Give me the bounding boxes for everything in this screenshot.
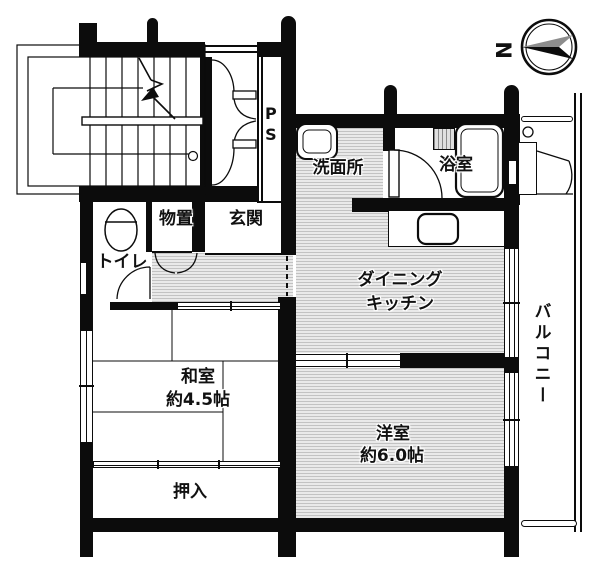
- stair-top-wall: [79, 42, 205, 57]
- entrance-label: 玄関: [218, 210, 274, 230]
- western-balcony-window: [504, 372, 519, 467]
- stub-wash-bath: [384, 85, 397, 114]
- japanese-room-label: 和室: [168, 368, 228, 388]
- compass-icon: [522, 20, 576, 74]
- bathroom-window: [508, 160, 517, 185]
- toilet-icon: [105, 209, 137, 251]
- balcony-label: バルコニー: [530, 286, 550, 422]
- ps-line-left: [257, 53, 259, 202]
- dk-balcony-window: [504, 248, 519, 358]
- water-heater-unit: [518, 142, 537, 195]
- bathroom-pan: [433, 128, 455, 150]
- bathroom-label: 浴室: [431, 156, 481, 176]
- right-wall-upper: [504, 205, 519, 248]
- pipe-space-label: PS: [261, 98, 279, 152]
- stub-bath-right: [504, 85, 519, 114]
- entrance-step-line: [205, 253, 293, 255]
- western-room-label: 洋室: [363, 425, 423, 445]
- staircase: [17, 45, 205, 194]
- entrance-dk-boundary: [286, 256, 288, 296]
- balcony-rail-line1: [574, 93, 576, 532]
- dk-western-sliding-door: [295, 354, 401, 367]
- toilet-window: [80, 262, 87, 295]
- ps-bottom-line: [257, 201, 281, 203]
- wash-bath-divider: [383, 128, 395, 151]
- closet-fusuma: [93, 461, 281, 468]
- stair-landing-wall: [200, 57, 212, 188]
- storage-label: 物置: [150, 210, 202, 230]
- balcony-rail-line2: [580, 93, 582, 532]
- japanese-room-top-wall: [110, 302, 177, 310]
- balcony-divider-top: [521, 116, 573, 122]
- landing-top-line2: [205, 51, 257, 53]
- washroom-label: 洗面所: [306, 159, 370, 179]
- ps-right-wall: [281, 42, 296, 255]
- dining-kitchen-label-line2: キッチン: [348, 295, 452, 315]
- corridor-floor: [152, 253, 293, 303]
- japanese-room-window: [80, 330, 93, 443]
- stairs-up-arrow: [139, 58, 175, 119]
- washroom-top-wall: [296, 114, 518, 128]
- stair-bottom-wall: [79, 186, 257, 202]
- storage-bottom-line: [152, 251, 192, 253]
- right-wall-mid: [504, 358, 519, 372]
- entrance-door-arcs: [212, 60, 256, 185]
- bottom-wall: [80, 518, 519, 532]
- floor-plan: トイレ 物置 玄関 PS 洗面所 浴室 ダイニング キッチン 和室 約4.5帖 …: [0, 0, 600, 574]
- column-top-left: [79, 23, 97, 57]
- balcony-divider-bottom: [521, 520, 577, 527]
- dining-kitchen-label-line1: ダイニング: [348, 271, 452, 291]
- column-top-mid: [147, 18, 158, 57]
- japanese-room-size: 約4.5帖: [158, 391, 238, 411]
- toilet-label: トイレ: [92, 253, 152, 273]
- landing-top-line1: [205, 45, 257, 47]
- japanese-room-sliding-door: [177, 302, 281, 310]
- kitchen-counter: [388, 210, 505, 247]
- closet-label: 押入: [164, 483, 216, 503]
- right-wall-lower: [504, 467, 519, 557]
- dk-western-wall: [400, 353, 504, 368]
- western-room-size: 約6.0帖: [352, 447, 432, 467]
- bottom-stub-left: [80, 532, 93, 557]
- compass-north-label: N: [493, 41, 517, 59]
